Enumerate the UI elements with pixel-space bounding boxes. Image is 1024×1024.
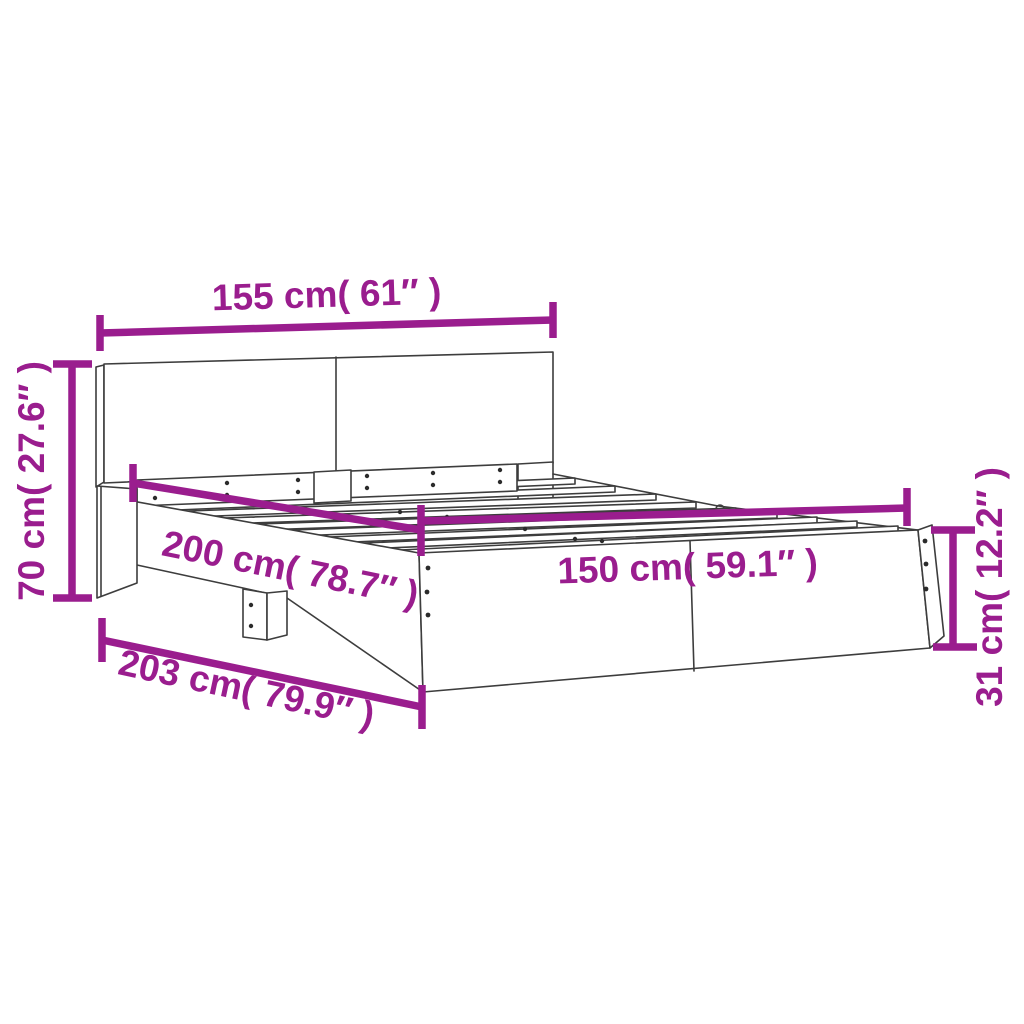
headboard-left-leg [97, 486, 137, 598]
dimension-total-length-label: 203 cm( 79.9″ ) [115, 642, 378, 736]
dimension-headboard-height [53, 364, 92, 598]
dimension-diagram: 155 cm( 61″ ) 70 cm( 27.6″ ) 200 cm( 78.… [0, 0, 1024, 1024]
dimension-headboard-width-label: 155 cm( 61″ ) [211, 271, 442, 319]
dimension-headboard-height-label: 70 cm( 27.6″ ) [11, 361, 52, 601]
dimension-footboard-height-label: 31 cm( 12.2″ ) [969, 467, 1010, 707]
bed-frame-diagram-canvas: 155 cm( 61″ ) 70 cm( 27.6″ ) 200 cm( 78.… [0, 0, 1024, 1024]
middle-leg [243, 589, 287, 640]
